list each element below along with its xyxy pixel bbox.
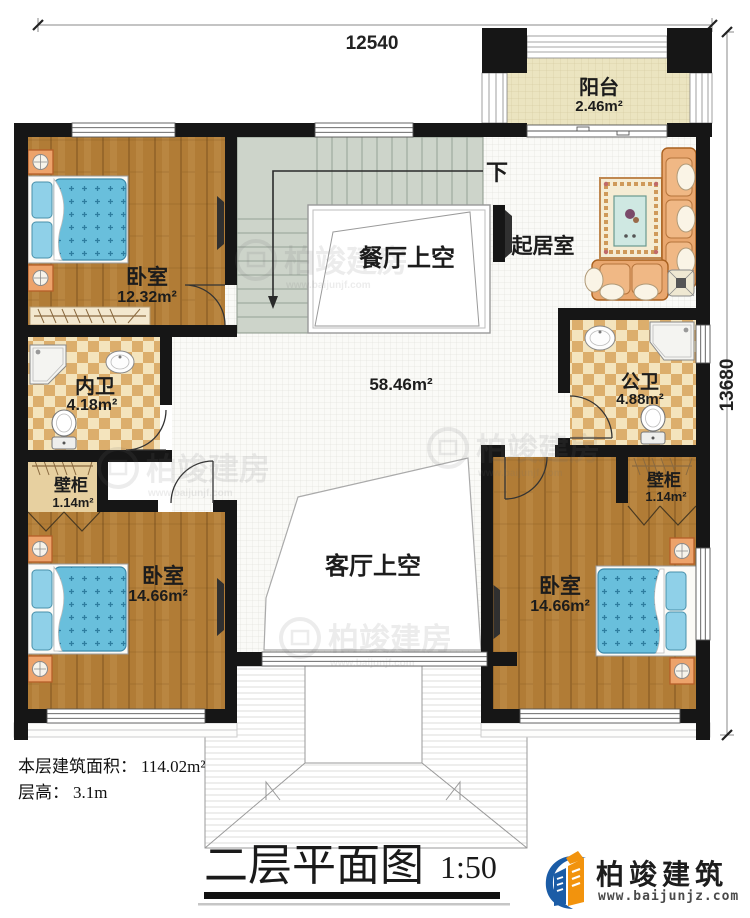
dimension-top-value: 12540: [346, 33, 399, 54]
label-closet-left-area: 1.14m²: [52, 495, 94, 510]
floor-plan-drawing: 12540 13680: [0, 0, 750, 918]
tv: [217, 196, 224, 250]
tv-wall-stub: [493, 205, 505, 262]
label-stairs-down: 下: [486, 160, 508, 185]
svg-text:www.baijunjf.com: www.baijunjf.com: [147, 488, 233, 499]
label-bedroom-top-left-area: 12.32m²: [117, 289, 177, 306]
label-hall-area: 58.46m²: [369, 375, 433, 394]
floor-area-value: 114.02m²: [141, 757, 205, 776]
label-bedroom-bottom-right-area: 14.66m²: [530, 598, 590, 615]
page-title-scale: 1:50: [440, 849, 497, 885]
label-public-bath-area: 4.88m²: [616, 391, 664, 408]
svg-text:层高：3.1m: 层高：3.1m: [18, 783, 107, 802]
label-living: 起居室: [511, 234, 575, 258]
floor-height-label: 层高：: [18, 783, 69, 802]
toilet: [52, 410, 76, 449]
toilet: [641, 405, 665, 444]
label-bedroom-bottom-right: 卧室: [539, 574, 581, 598]
tv: [494, 585, 501, 639]
svg-text:柏竣建房: 柏竣建房: [146, 452, 270, 487]
coffee-table: [614, 196, 646, 246]
label-closet-right-area: 1.14m²: [645, 489, 687, 504]
sliding-door: [527, 125, 667, 137]
label-balcony: 阳台: [579, 75, 619, 99]
label-inner-bath-area: 4.18m²: [67, 397, 118, 414]
floor-height-value: 3.1m: [73, 783, 107, 802]
balcony-pillar: [482, 28, 527, 73]
balcony-railing-right: [690, 73, 712, 123]
side-table: [668, 270, 694, 296]
svg-text:www.baijunjf.com: www.baijunjf.com: [477, 468, 563, 479]
brand-logo: 柏竣建筑 www.baijunjz.com: [546, 851, 739, 909]
tv: [217, 578, 224, 636]
label-public-bath: 公卫: [621, 371, 659, 393]
balcony-pillar: [667, 28, 712, 73]
dimension-right-value: 13680: [717, 359, 738, 412]
sink: [106, 351, 134, 373]
svg-text:柏竣建房: 柏竣建房: [476, 432, 600, 467]
svg-text:www.baijunjf.com: www.baijunjf.com: [285, 280, 371, 291]
label-bedroom-top-left: 卧室: [126, 265, 168, 289]
svg-text:柏竣建房: 柏竣建房: [328, 622, 452, 657]
label-closet-right: 壁柜: [647, 470, 681, 490]
label-bedroom-bottom-left: 卧室: [142, 564, 184, 588]
page-title: 二层平面图: [204, 841, 424, 890]
porch-roof-plan: [205, 666, 527, 848]
label-balcony-area: 2.46m²: [575, 98, 623, 115]
label-dining-void: 餐厅上空: [359, 244, 455, 272]
brand-logo-icon: [546, 851, 586, 909]
dimension-right: 13680: [717, 27, 738, 740]
svg-text:本层建筑面积：114.02m²: 本层建筑面积：114.02m²: [18, 757, 205, 776]
label-inner-bath: 内卫: [75, 374, 115, 398]
sink: [585, 326, 615, 350]
label-living-void: 客厅上空: [325, 552, 421, 580]
floor-area-label: 本层建筑面积：: [18, 757, 137, 776]
floor-plan-page: 12540 13680: [0, 0, 750, 918]
brand-url: www.baijunjz.com: [598, 889, 739, 904]
label-bedroom-bottom-left-area: 14.66m²: [128, 588, 188, 605]
label-closet-left: 壁柜: [54, 475, 88, 495]
svg-text:www.baijunjf.com: www.baijunjf.com: [329, 658, 415, 669]
brand-name: 柏竣建筑: [596, 858, 728, 890]
floor-info: 本层建筑面积：114.02m² 层高：3.1m: [18, 757, 205, 802]
title-block: 二层平面图 1:50: [198, 841, 510, 906]
